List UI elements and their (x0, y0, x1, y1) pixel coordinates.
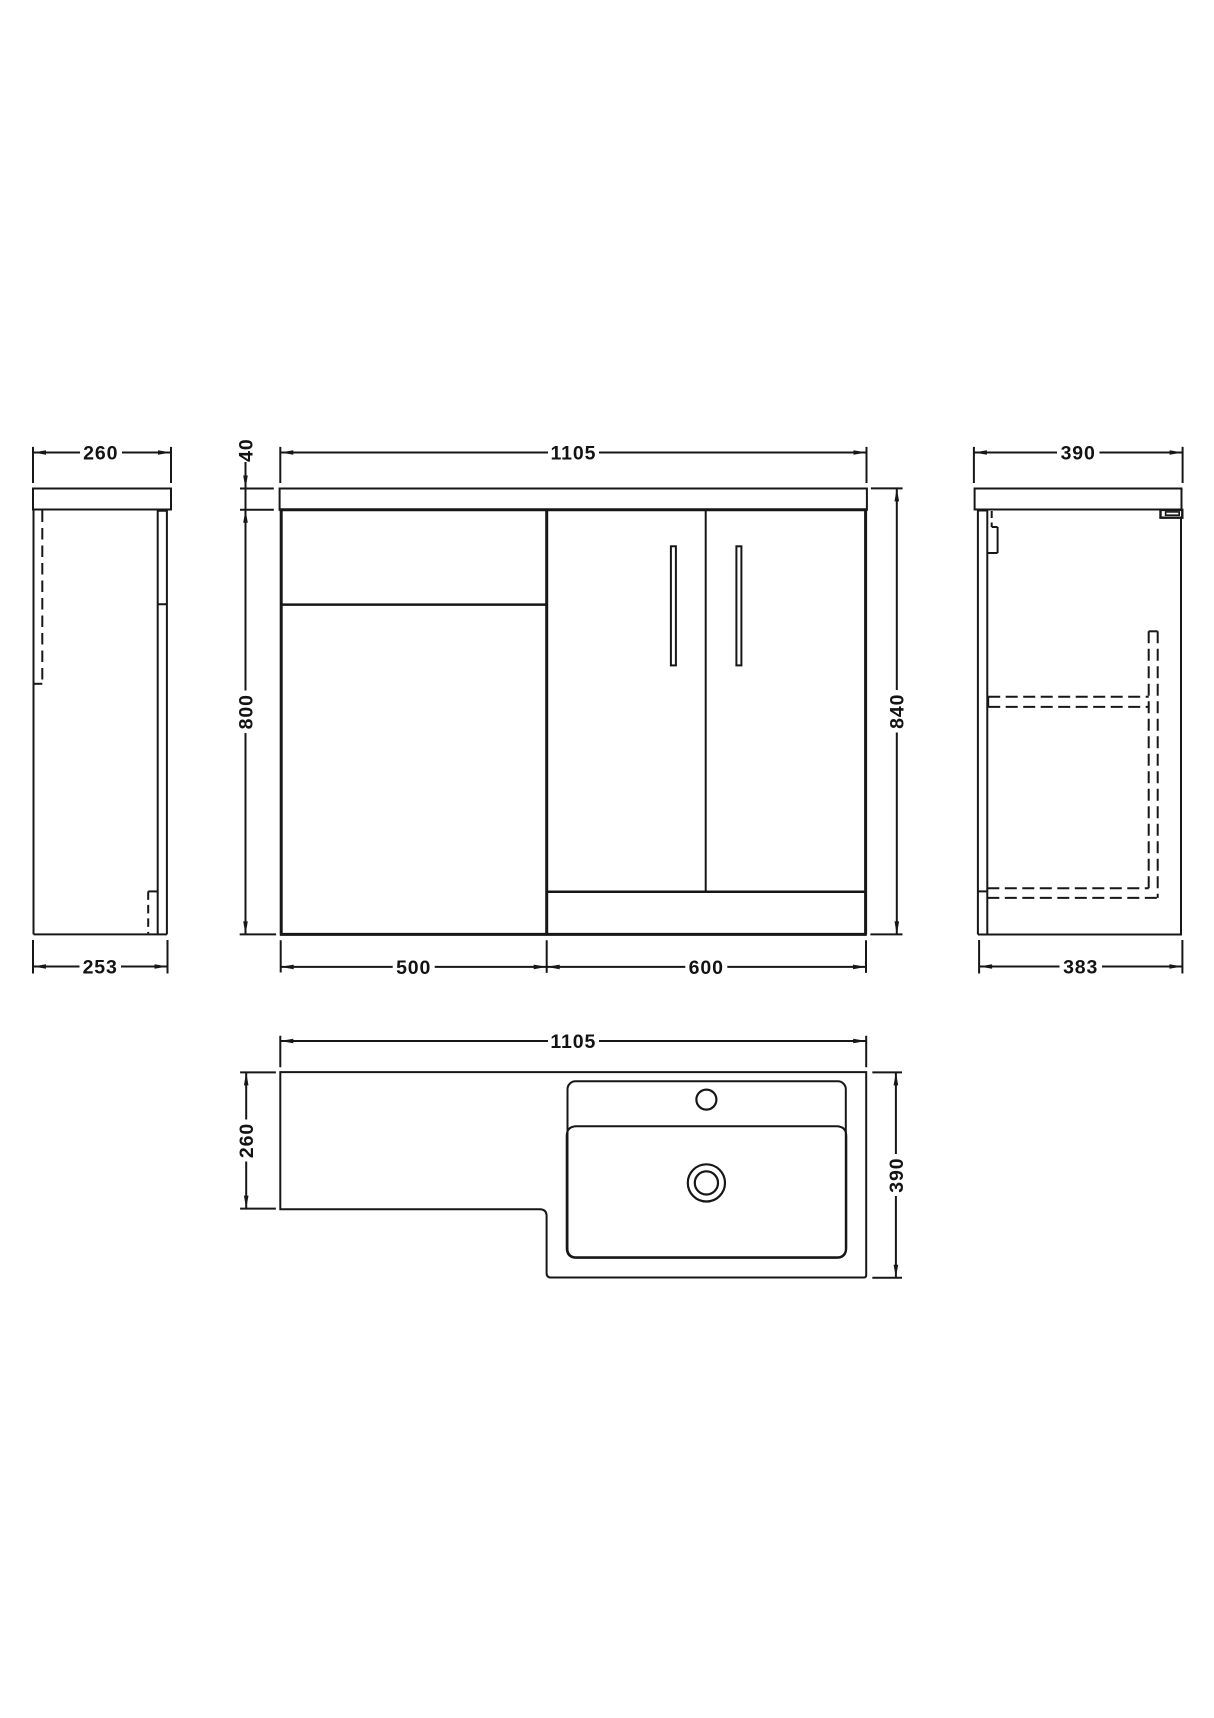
svg-text:260: 260 (83, 442, 118, 464)
svg-text:383: 383 (1063, 956, 1098, 978)
svg-text:390: 390 (886, 1157, 908, 1192)
svg-text:840: 840 (887, 694, 909, 729)
svg-text:500: 500 (396, 957, 431, 979)
svg-text:800: 800 (235, 694, 257, 729)
svg-text:1105: 1105 (550, 442, 596, 464)
svg-text:40: 40 (235, 438, 257, 462)
svg-text:1105: 1105 (550, 1031, 596, 1053)
svg-text:390: 390 (1061, 442, 1096, 464)
svg-text:253: 253 (83, 956, 118, 978)
svg-text:600: 600 (689, 957, 724, 979)
svg-text:260: 260 (236, 1123, 258, 1158)
